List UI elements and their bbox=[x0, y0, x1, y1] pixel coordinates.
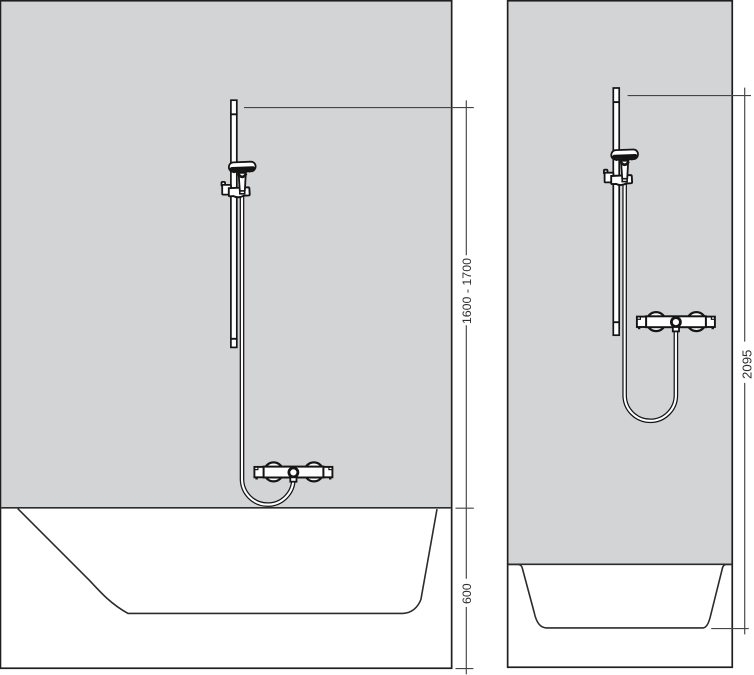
svg-text:600: 600 bbox=[460, 583, 474, 604]
svg-text:2095: 2095 bbox=[740, 350, 754, 379]
svg-text:1600 - 1700: 1600 - 1700 bbox=[460, 258, 474, 324]
